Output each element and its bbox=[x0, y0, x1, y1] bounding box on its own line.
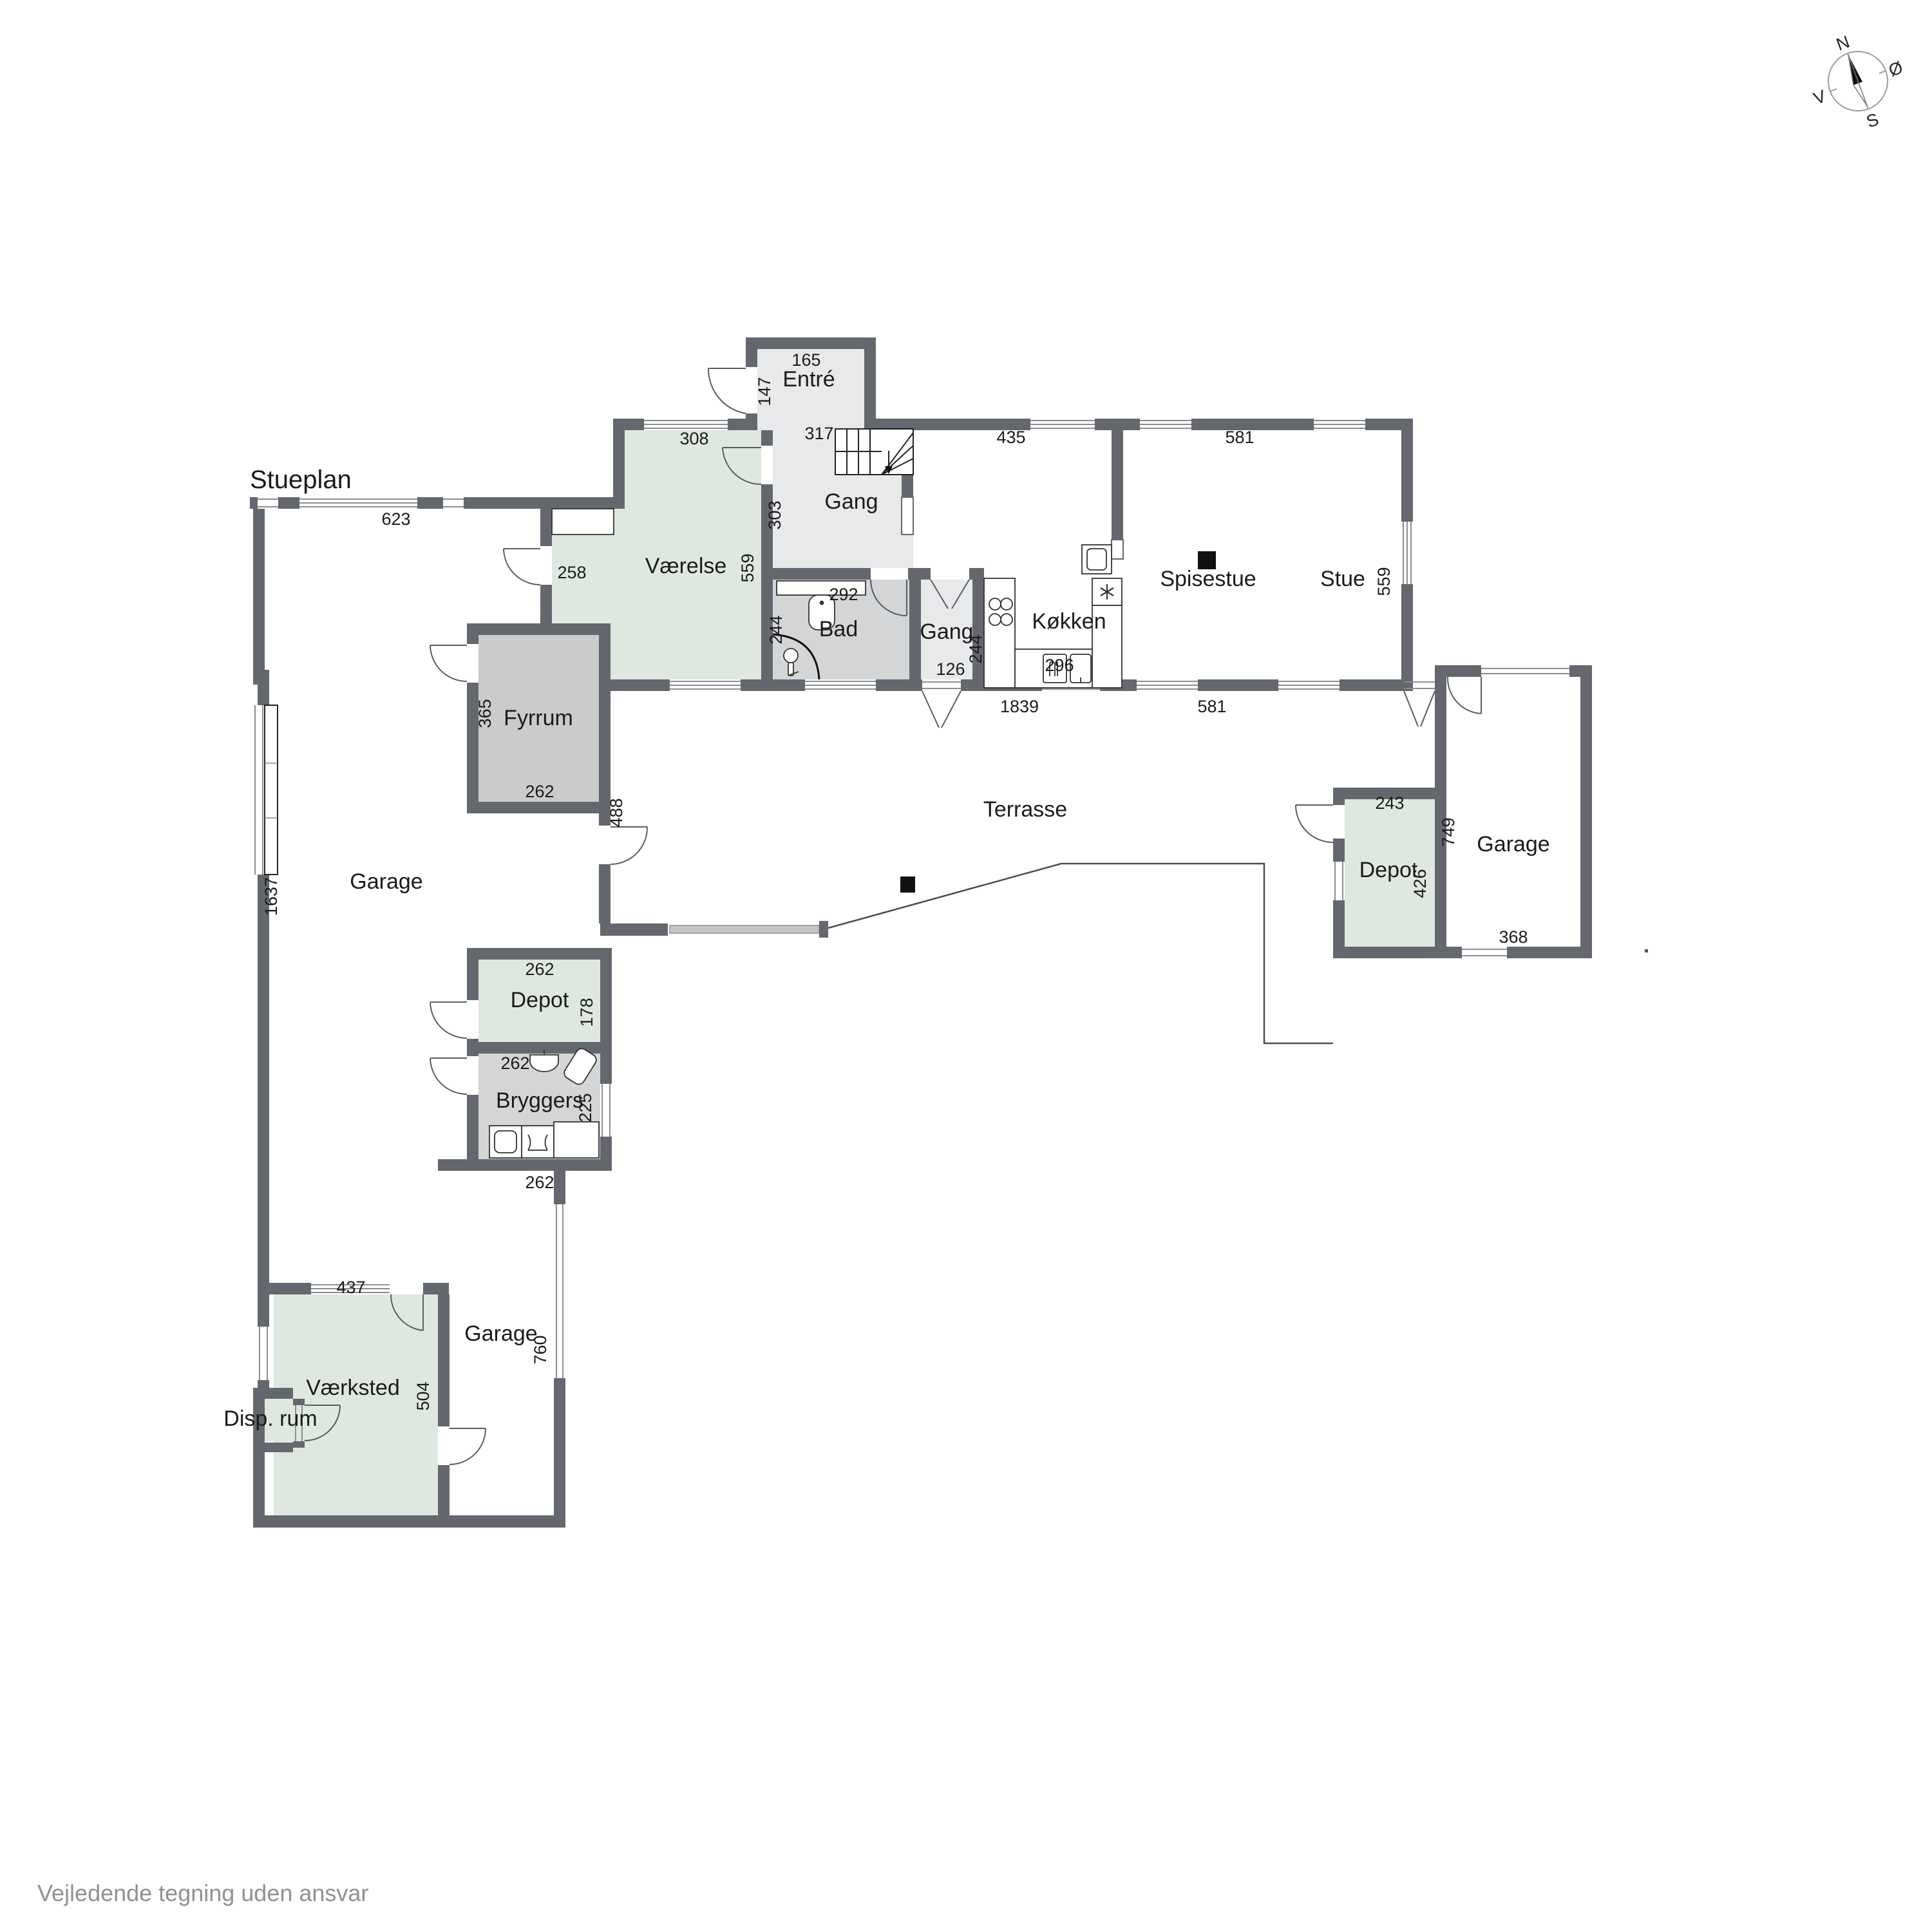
plan-shape bbox=[599, 635, 611, 813]
plan-shape bbox=[1507, 947, 1592, 958]
plan-shape bbox=[278, 497, 299, 509]
room-label-v-relse: Værelse bbox=[645, 554, 727, 578]
railing-wall bbox=[600, 923, 668, 936]
plan-shape bbox=[467, 1042, 612, 1054]
floor-plan-canvas: N Ø S V Stueplan Vejledende tegning uden… bbox=[0, 0, 1932, 1932]
window-top-1 bbox=[1030, 421, 1095, 428]
terrasse-post bbox=[900, 876, 915, 893]
dimension-label: 258 bbox=[557, 563, 586, 582]
room-label-gang: Gang bbox=[824, 489, 878, 514]
closet-vaerelse bbox=[552, 509, 614, 535]
door-stue-se-exterior bbox=[1404, 691, 1435, 726]
room-garage-right bbox=[1446, 677, 1580, 947]
plan-shape bbox=[922, 691, 939, 728]
bryggers-worktop bbox=[554, 1122, 599, 1158]
railing-light bbox=[670, 925, 819, 933]
plan-shape bbox=[1333, 838, 1345, 862]
plan-shape bbox=[600, 864, 1333, 1043]
plan-shape bbox=[908, 568, 931, 580]
stove-burner bbox=[989, 598, 1001, 610]
dimension-label: 1637 bbox=[261, 877, 281, 916]
room-label-v-rksted: Værksted bbox=[306, 1376, 400, 1400]
dimension-label: 296 bbox=[1045, 656, 1074, 675]
dimension-label: 749 bbox=[1439, 817, 1458, 846]
staircase bbox=[835, 429, 913, 475]
window-bryggers-east bbox=[602, 1084, 610, 1137]
plan-shape bbox=[1435, 665, 1446, 947]
dimension-label: 178 bbox=[577, 998, 596, 1027]
dimension-label: 581 bbox=[1225, 428, 1254, 447]
dimension-label: 262 bbox=[500, 1054, 529, 1073]
door-post-gang-east bbox=[902, 497, 913, 535]
plan-shape bbox=[746, 413, 757, 430]
dimension-label: 262 bbox=[525, 1173, 554, 1192]
kitchen-counter-left bbox=[984, 578, 1015, 688]
plan-shape bbox=[265, 349, 1580, 1515]
plan-shape bbox=[250, 497, 258, 509]
window-garage-top-a bbox=[258, 499, 278, 507]
dimension-label: 760 bbox=[531, 1335, 550, 1364]
plan-shape bbox=[253, 670, 269, 685]
dimension-label: 262 bbox=[525, 782, 554, 801]
plan-shape bbox=[1446, 665, 1481, 677]
plan-shape bbox=[1404, 691, 1418, 726]
door-slab-gang-south bbox=[922, 682, 961, 688]
plan-title: Stueplan bbox=[250, 466, 352, 494]
plan-shape bbox=[1333, 947, 1462, 958]
room-label-bryggers: Bryggers bbox=[496, 1088, 583, 1113]
plan-shape bbox=[611, 623, 625, 679]
compass-n: N bbox=[1833, 32, 1852, 55]
plan-shape bbox=[613, 419, 625, 509]
room-label-bad: Bad bbox=[819, 617, 858, 641]
garage-right-bottom-opening bbox=[1462, 949, 1507, 956]
plan-shape bbox=[438, 1159, 612, 1171]
plan-shape bbox=[600, 1054, 612, 1084]
plan-shape bbox=[423, 1283, 449, 1294]
garage-door-right-top bbox=[1481, 668, 1569, 674]
window-garage-top-c bbox=[443, 499, 464, 507]
plan-shape bbox=[708, 368, 746, 413]
plan-shape bbox=[540, 585, 552, 623]
plan-shape bbox=[438, 1465, 450, 1515]
plan-shape bbox=[530, 1055, 558, 1072]
window-depot-right-west bbox=[1335, 862, 1343, 900]
room-label-stue: Stue bbox=[1320, 567, 1365, 591]
plan-shape bbox=[1830, 89, 1837, 91]
door-entre bbox=[708, 368, 746, 413]
plan-shape bbox=[1879, 71, 1886, 73]
dimension-label: 317 bbox=[804, 424, 833, 443]
plan-shape bbox=[773, 679, 805, 691]
dimension-label: 581 bbox=[1197, 697, 1226, 716]
plan-shape bbox=[902, 475, 913, 497]
plan-shape bbox=[600, 948, 612, 1054]
window-top-3 bbox=[1314, 421, 1365, 428]
plan-shape bbox=[909, 580, 921, 679]
plan-shape bbox=[467, 802, 611, 813]
plan-shape bbox=[554, 1378, 565, 1515]
plan-shape bbox=[1198, 679, 1278, 691]
plan-shape bbox=[1580, 665, 1592, 958]
plan-shape bbox=[1296, 805, 1333, 842]
plan-shape bbox=[438, 1294, 450, 1426]
window-vaerelse-south bbox=[670, 681, 741, 689]
compass-e: Ø bbox=[1886, 57, 1906, 80]
garage-door-bottom-east bbox=[556, 1204, 563, 1378]
plan-shape bbox=[1112, 430, 1123, 540]
room-label-k-kken: Køkken bbox=[1032, 609, 1106, 634]
plan-shape bbox=[265, 705, 278, 875]
plan-shape bbox=[984, 578, 1015, 688]
compass-rose: N Ø S V bbox=[1811, 32, 1906, 132]
room-label-entr-: Entré bbox=[782, 367, 835, 392]
plan-shape bbox=[253, 1515, 565, 1528]
dimension-label: 308 bbox=[679, 429, 708, 448]
plan-shape bbox=[262, 1283, 311, 1294]
plan-shape bbox=[728, 419, 746, 430]
dimension-label: 243 bbox=[1375, 793, 1404, 813]
room-label-spisestue: Spisestue bbox=[1160, 567, 1256, 591]
plan-shape bbox=[741, 679, 773, 691]
room-label-depot: Depot bbox=[1359, 858, 1418, 882]
plan-shape bbox=[495, 1131, 516, 1153]
plan-shape bbox=[820, 601, 824, 605]
plan-shape bbox=[1848, 55, 1867, 106]
dimension-label: 244 bbox=[766, 615, 786, 644]
plan-shape bbox=[467, 960, 478, 1000]
room-label-terrasse: Terrasse bbox=[983, 797, 1067, 822]
stove-burner bbox=[1001, 614, 1012, 625]
footer-disclaimer: Vejledende tegning uden ansvar bbox=[37, 1880, 368, 1906]
compass-s: S bbox=[1864, 109, 1881, 131]
plan-shape bbox=[417, 497, 443, 509]
door-post-kitchen-stub bbox=[1112, 540, 1123, 559]
plan-shape bbox=[969, 568, 984, 580]
window-stue-south bbox=[1278, 681, 1340, 689]
dimension-label: 559 bbox=[738, 553, 757, 582]
dimension-label: 504 bbox=[413, 1381, 433, 1410]
kitchen-oven bbox=[1082, 545, 1112, 574]
window-spisestue-south bbox=[1137, 681, 1198, 689]
dimension-label: 303 bbox=[765, 500, 784, 529]
plan-shape bbox=[253, 509, 265, 670]
dimension-label: 165 bbox=[791, 350, 820, 370]
plan-shape bbox=[611, 679, 670, 691]
dimension-label: 426 bbox=[1410, 869, 1430, 898]
door-depot-right bbox=[1296, 805, 1333, 842]
plan-shape bbox=[293, 1441, 305, 1448]
plan-shape bbox=[599, 864, 611, 923]
plan-shape bbox=[1421, 691, 1435, 726]
plan-shape bbox=[554, 1171, 565, 1204]
plan-shape bbox=[746, 337, 876, 349]
plan-shape bbox=[611, 827, 647, 864]
dimension-label: 225 bbox=[576, 1093, 595, 1122]
plan-shape bbox=[467, 635, 478, 644]
railing-post bbox=[819, 921, 828, 938]
plan-shape bbox=[761, 430, 773, 446]
plan-shape bbox=[253, 1388, 293, 1399]
plan-shape bbox=[1087, 549, 1106, 570]
compass-needle-south bbox=[1848, 55, 1867, 106]
dimension-label: 262 bbox=[525, 960, 554, 979]
plan-shape bbox=[876, 679, 922, 691]
window-top-2 bbox=[1140, 421, 1191, 428]
garage-door-left-leaf bbox=[265, 705, 278, 875]
plan-shape bbox=[864, 337, 876, 430]
dimension-label: 126 bbox=[936, 659, 965, 679]
dryer bbox=[522, 1126, 554, 1158]
window-garage-top-b bbox=[299, 499, 417, 507]
window-stue-east bbox=[1403, 522, 1411, 584]
plan-shape bbox=[540, 509, 552, 546]
dimension-label: 437 bbox=[336, 1278, 365, 1297]
plan-shape bbox=[1333, 900, 1345, 947]
dimension-label: 623 bbox=[381, 509, 410, 529]
stove-burner bbox=[1001, 598, 1012, 610]
plan-shape bbox=[464, 497, 613, 509]
plan-shape bbox=[784, 649, 798, 663]
room-label-fyrrum: Fyrrum bbox=[504, 706, 573, 730]
plan-shape bbox=[467, 948, 612, 960]
bryggers-counter bbox=[489, 1122, 599, 1158]
dimension-label: 435 bbox=[996, 428, 1025, 447]
window-top-308 bbox=[644, 420, 728, 429]
room-label-garage: Garage bbox=[350, 869, 422, 894]
plan-shape bbox=[972, 580, 984, 679]
window-garage-west bbox=[255, 705, 263, 875]
plan-shape bbox=[1401, 584, 1413, 691]
plan-shape bbox=[258, 1380, 269, 1388]
room-label-depot: Depot bbox=[511, 988, 569, 1012]
plan-shape bbox=[1333, 799, 1345, 805]
plan-shape bbox=[1401, 419, 1413, 522]
door-gang-small-exterior bbox=[922, 691, 961, 728]
dimension-label: 1839 bbox=[1000, 697, 1039, 716]
plan-shape bbox=[253, 1443, 293, 1452]
plan-shape bbox=[1340, 679, 1404, 691]
plan-shape bbox=[1095, 419, 1140, 430]
dimension-label: 368 bbox=[1499, 927, 1528, 947]
plan-shape bbox=[258, 685, 269, 705]
door-garage-terrasse-488 bbox=[611, 827, 647, 864]
window-bad-south bbox=[805, 681, 876, 689]
dimension-label: 147 bbox=[755, 377, 774, 406]
plan-dot bbox=[1645, 949, 1648, 952]
plan-shape bbox=[293, 1399, 305, 1405]
room-label-garage: Garage bbox=[1477, 832, 1549, 857]
plan-shape bbox=[478, 813, 599, 948]
room-label-disp-rum: Disp. rum bbox=[223, 1406, 317, 1431]
dimension-label: 292 bbox=[829, 585, 858, 604]
plan-shape bbox=[258, 875, 269, 1283]
compass-v: V bbox=[1811, 86, 1828, 108]
plan-shape bbox=[773, 568, 871, 580]
dimension-label: 244 bbox=[966, 634, 985, 663]
dimension-label: 559 bbox=[1374, 567, 1394, 596]
stove-burner bbox=[989, 614, 1001, 625]
dimension-label: 488 bbox=[607, 798, 626, 827]
dimension-label: 365 bbox=[475, 699, 495, 728]
plan-shape bbox=[746, 337, 757, 367]
plan-shape bbox=[467, 623, 611, 635]
room-label-garage: Garage bbox=[464, 1321, 537, 1346]
plan-shape bbox=[942, 691, 961, 728]
